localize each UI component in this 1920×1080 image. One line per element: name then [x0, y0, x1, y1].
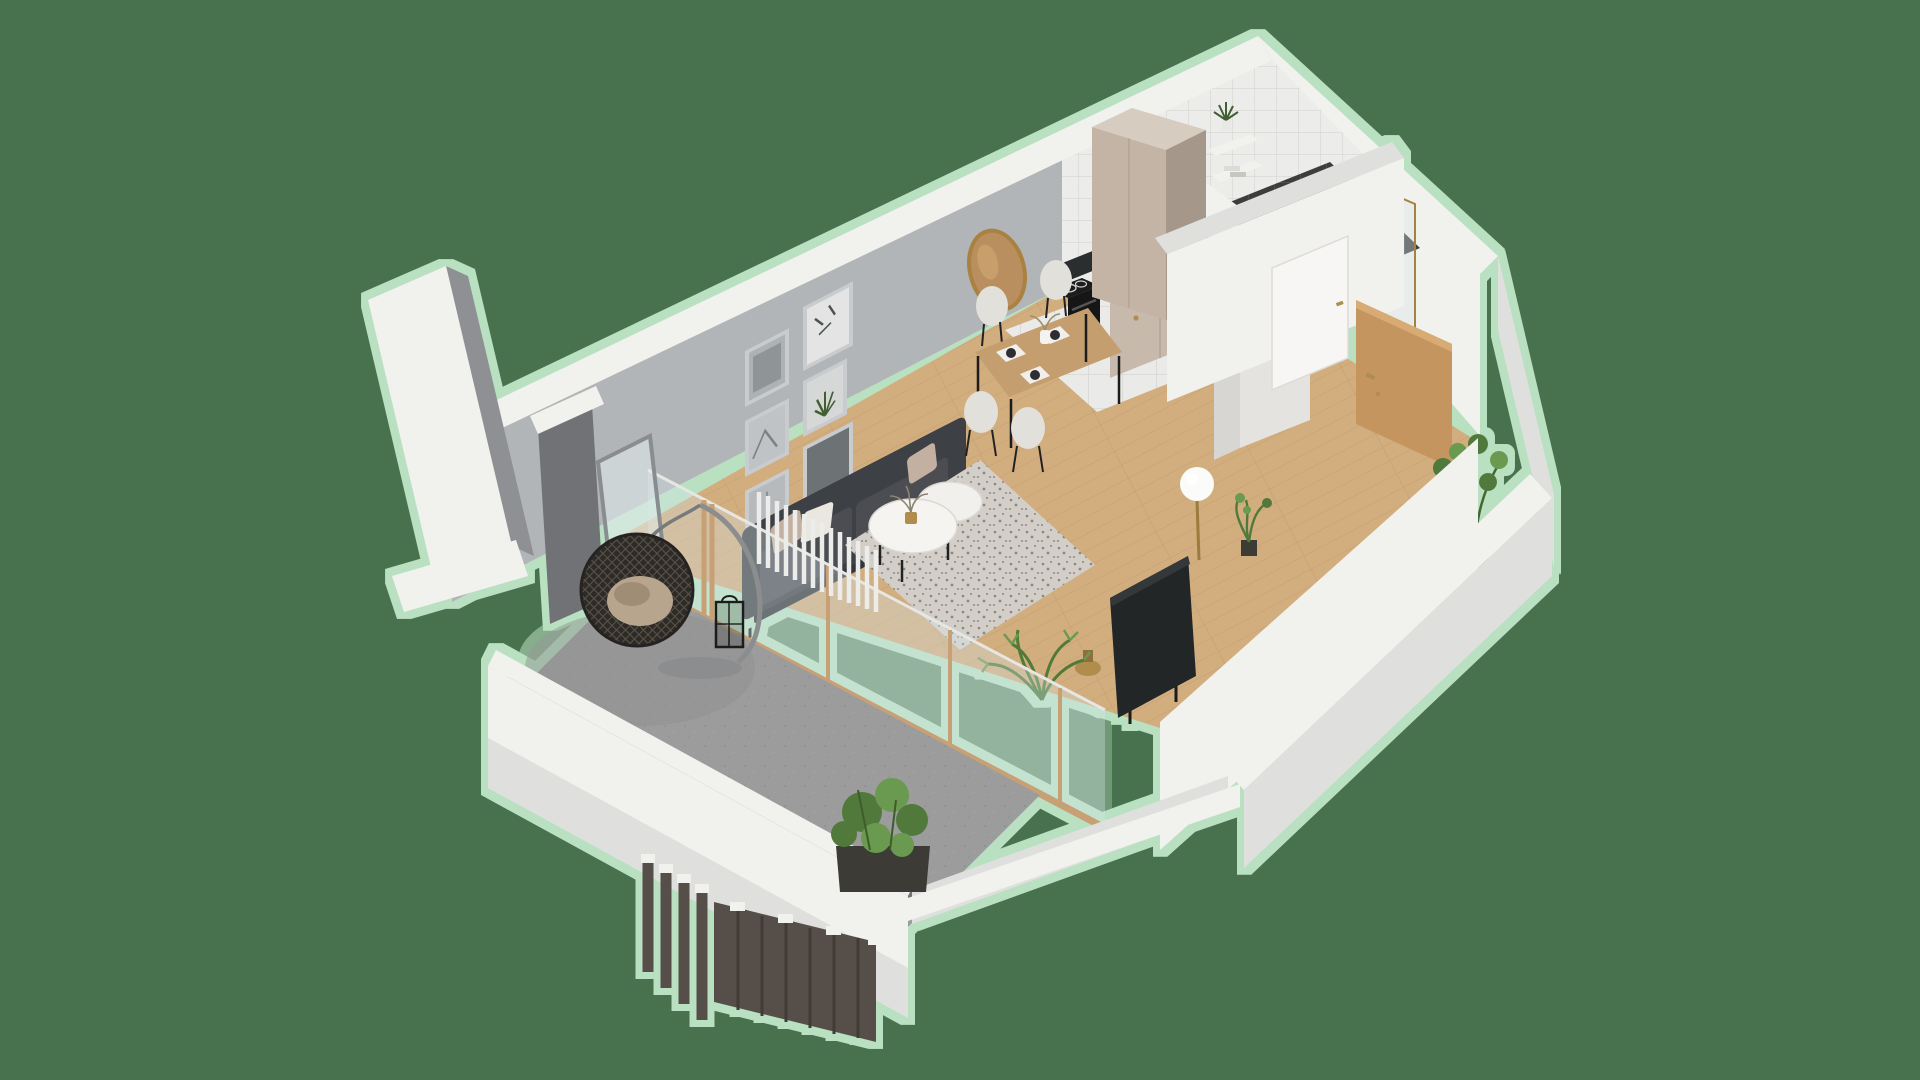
cabinet-knob-1: [1133, 315, 1138, 320]
egg-chair-cushion-shade: [614, 582, 650, 606]
towel-stack-2: [1230, 172, 1246, 177]
lamp-stem: [1197, 500, 1199, 560]
apartment-3d-scene: [0, 0, 1920, 1080]
egg-chair-base: [658, 657, 742, 679]
table-vase: [1040, 330, 1050, 344]
candle-lantern: [716, 596, 743, 647]
floorplan-render: [0, 0, 1920, 1080]
gold-vase: [905, 512, 917, 524]
towel-stack: [1224, 166, 1240, 171]
lamp-highlight: [1186, 473, 1198, 485]
lamp-globe: [1180, 467, 1214, 501]
entrance-door-lock: [1376, 392, 1380, 396]
